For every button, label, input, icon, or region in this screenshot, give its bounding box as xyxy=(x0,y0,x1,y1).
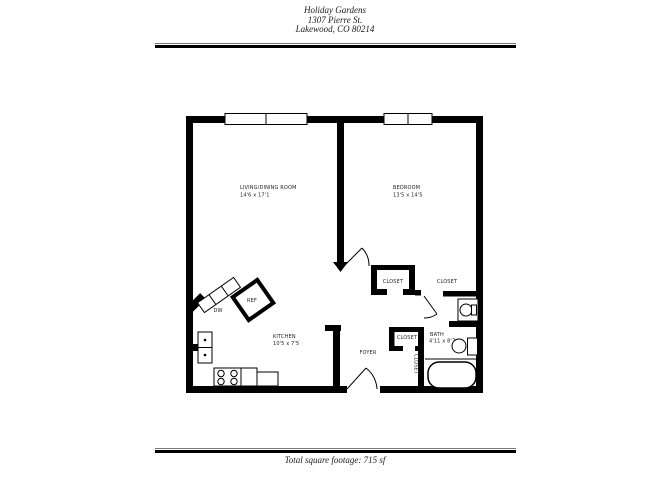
bedroom-closet-wall-right xyxy=(409,265,415,295)
bath-wall-top xyxy=(443,291,483,297)
bedroom-closet-wall-bottom-left xyxy=(371,289,387,295)
bedroom-door-leaf xyxy=(344,248,362,266)
label-bedroom-closet-2: CLOSET xyxy=(437,279,458,285)
burner xyxy=(218,370,224,376)
footer-divider xyxy=(155,448,516,453)
bath-vanity xyxy=(458,299,478,321)
entry-door-swing xyxy=(366,368,377,389)
hall-wall-stub xyxy=(415,290,421,296)
toilet xyxy=(452,338,478,355)
wall-kitchen-foyer xyxy=(333,325,340,386)
wall-living-bedroom xyxy=(337,123,344,263)
label-foyer: FOYER xyxy=(360,350,377,356)
sink-faucet xyxy=(193,344,199,351)
label-living-dining-dims: 14'6 x 17'1 xyxy=(240,193,270,199)
sink-drain xyxy=(204,339,207,342)
label-refrigerator: REF xyxy=(247,298,257,304)
stove xyxy=(214,368,241,386)
label-kitchen: KITCHEN xyxy=(273,334,296,340)
label-bedroom: BEDROOM xyxy=(393,185,420,191)
burner xyxy=(218,378,224,384)
label-dishwasher: DW xyxy=(213,308,222,314)
bedroom-door xyxy=(344,248,369,266)
bathtub xyxy=(425,359,476,388)
hall-door xyxy=(424,296,437,318)
kitchen-counter xyxy=(241,368,257,386)
hall-door-leaf xyxy=(424,296,437,314)
tub-basin xyxy=(428,362,476,388)
vanity-faucet xyxy=(472,305,477,315)
footer-note: Total square footage: 715 sf xyxy=(0,455,670,465)
kitchen-counter-2 xyxy=(257,372,278,386)
label-foyer-closet: CLOSET xyxy=(397,335,418,341)
wall-living-bedroom-end xyxy=(333,262,348,272)
burner xyxy=(231,378,237,384)
hall-door-swing xyxy=(424,314,437,318)
bedroom-door-swing xyxy=(362,248,369,266)
label-bath: BATH xyxy=(430,332,444,338)
label-hall-closet: CLOSET xyxy=(413,354,419,375)
label-kitchen-dims: 10'5 x 7'5 xyxy=(273,341,299,347)
label-living-dining: LIVING/DINING ROOM xyxy=(240,185,297,191)
sink-drain xyxy=(204,354,207,357)
bedroom-closet-wall-top xyxy=(371,265,415,270)
wall-bottom-left xyxy=(186,386,347,393)
kitchen-fixtures xyxy=(193,277,279,386)
floorplan-page: Holiday Gardens 1307 Pierre St. Lakewood… xyxy=(0,0,670,480)
label-bath-dims: 4'11 x 8'7 xyxy=(429,339,455,345)
bath-vanity-wall xyxy=(449,321,480,327)
floor-plan: LIVING/DINING ROOM 14'6 x 17'1 BEDROOM 1… xyxy=(0,0,670,480)
kitchen-sink xyxy=(193,332,213,363)
label-bedroom-dims: 13'5 x 14'5 xyxy=(393,193,423,199)
wall-left xyxy=(186,116,193,393)
entry-door xyxy=(347,368,377,389)
entry-door-leaf xyxy=(347,368,366,389)
vanity-basin xyxy=(460,304,472,316)
toilet-tank xyxy=(468,338,478,355)
label-bedroom-closet: CLOSET xyxy=(383,279,404,285)
burner xyxy=(231,370,237,376)
foyer-closet-wall-bottom-left xyxy=(389,346,403,351)
